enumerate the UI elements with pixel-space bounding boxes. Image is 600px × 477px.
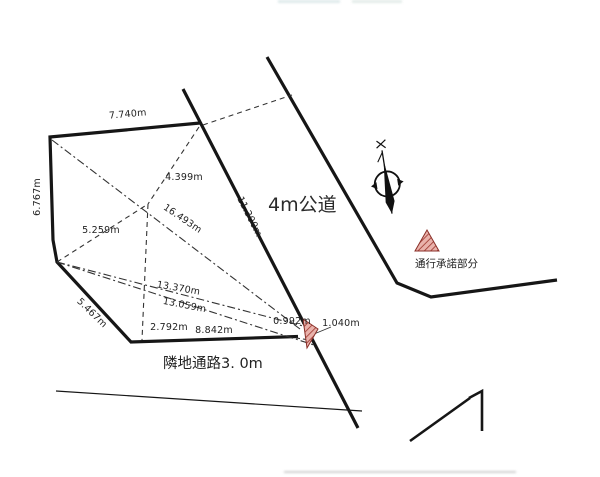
north-arrow-n-mark [375, 140, 386, 149]
north-arrow-icon [364, 138, 408, 216]
passage-boundary-line [56, 391, 362, 411]
road-left-edge [183, 89, 358, 428]
cropped-caption-fragment [284, 471, 516, 473]
survey-drawing-canvas: 7.740m 6.767m 4.399m 16.493m 11.300m 5.2… [0, 0, 600, 477]
dim-corner-segment-left: 0.992m [273, 316, 311, 327]
adjacent-passage-label: 隣地通路3. 0m [163, 355, 263, 372]
diag-line-upper [148, 127, 199, 204]
road-name-label: 4m公道 [268, 194, 337, 216]
dim-left-edge: 6.767m [32, 178, 43, 216]
cropped-title-fragment-left [278, 0, 340, 3]
dim-upper-diagonal: 4.399m [165, 172, 203, 183]
passage-consent-label: 通行承諾部分 [415, 257, 478, 270]
southeast-road-edge-a [410, 398, 470, 441]
dim-top-edge: 7.740m [109, 107, 147, 121]
dim-bottom-segment-left: 2.792m [150, 322, 188, 333]
top-edge-extension [203, 95, 292, 125]
cropped-title-fragment-right [352, 0, 402, 3]
dim-corner-segment-right: 1.040m [322, 318, 360, 329]
road-right-edge [267, 57, 557, 297]
dim-road-frontage: 11.300m [234, 195, 264, 239]
north-arrow-blade [379, 160, 396, 215]
vertical-division-line [142, 204, 148, 340]
land-survey-diagram: 7.740m 6.767m 4.399m 16.493m 11.300m 5.2… [0, 0, 600, 477]
southeast-road-edge-b [469, 391, 482, 431]
dim-long-diagonal: 16.493m [161, 202, 204, 236]
dim-bottom-segment-right: 8.842m [195, 325, 233, 336]
dim-lower-diagonal-a: 13.370m [156, 279, 201, 297]
hatched-triangle-legend [415, 230, 439, 251]
dim-mid-diagonal: 5.259m [82, 225, 120, 236]
